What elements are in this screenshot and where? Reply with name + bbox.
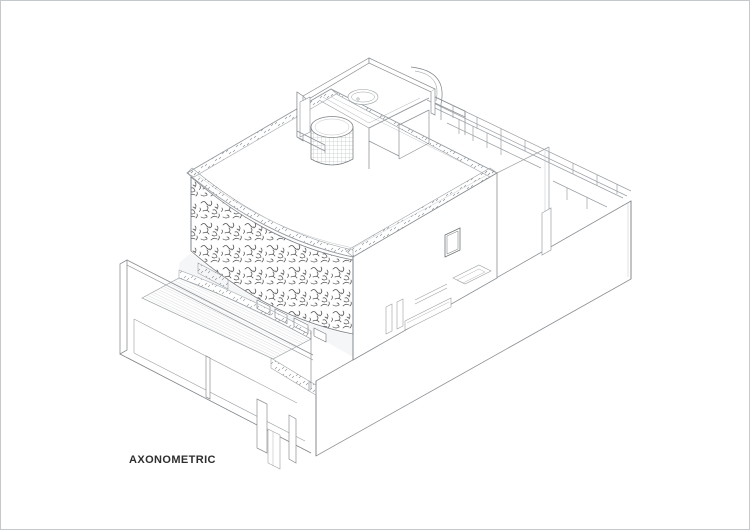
- pavilion-door: [300, 97, 310, 137]
- axonometric-drawing: [1, 1, 750, 530]
- sheet: AXONOMETRIC: [0, 0, 750, 530]
- stair-block: [268, 429, 280, 469]
- stair-cylinder: [311, 117, 353, 166]
- left-parapet-wall: [120, 260, 127, 354]
- axonometric-label: AXONOMETRIC: [129, 454, 216, 466]
